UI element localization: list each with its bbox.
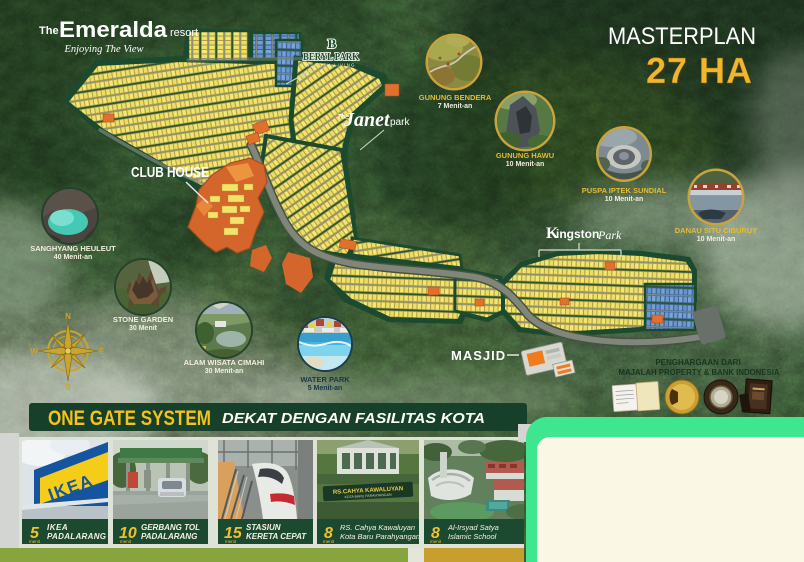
svg-text:IKEA: IKEA (47, 523, 68, 532)
svg-text:10 Menit-an: 10 Menit-an (506, 161, 545, 168)
svg-text:S: S (65, 383, 71, 392)
svg-text:B: B (328, 36, 337, 51)
svg-text:menit: menit (430, 539, 442, 544)
svg-text:resort: resort (170, 27, 198, 39)
svg-text:30 Menit-an: 30 Menit-an (205, 368, 244, 375)
svg-text:MASTERPLAN: MASTERPLAN (608, 23, 756, 50)
svg-text:27 HA: 27 HA (646, 50, 753, 91)
svg-text:ALAM WISATA CIMAHI: ALAM WISATA CIMAHI (184, 358, 265, 367)
svg-text:STONE GARDEN: STONE GARDEN (113, 315, 173, 324)
svg-text:menit: menit (29, 539, 41, 544)
svg-text:GUNUNG HAWU: GUNUNG HAWU (496, 151, 554, 160)
svg-text:BEAUTY LIVING: BEAUTY LIVING (306, 63, 356, 68)
svg-text:7 Menit-an: 7 Menit-an (438, 103, 473, 110)
svg-text:5 Menit-an: 5 Menit-an (308, 385, 343, 392)
svg-text:PUSPA IPTEK SUNDIAL: PUSPA IPTEK SUNDIAL (582, 186, 667, 195)
svg-text:30 Menit: 30 Menit (129, 325, 158, 332)
svg-text:RS. Cahya Kawaluyan: RS. Cahya Kawaluyan (340, 523, 415, 532)
svg-text:ingston: ingston (556, 227, 599, 241)
svg-text:Park: Park (597, 228, 622, 242)
svg-text:ONE GATE SYSTEM: ONE GATE SYSTEM (48, 407, 211, 430)
svg-text:The: The (39, 25, 59, 37)
svg-text:park: park (390, 117, 410, 128)
svg-text:Kota Baru Parahyangan: Kota Baru Parahyangan (340, 532, 420, 541)
svg-text:W: W (30, 347, 38, 356)
svg-text:PADALARANG: PADALARANG (141, 532, 197, 541)
svg-text:10 Menit-an: 10 Menit-an (697, 236, 736, 243)
svg-text:WATER PARK: WATER PARK (300, 375, 350, 384)
svg-text:Emeralda: Emeralda (59, 17, 168, 42)
svg-text:GERBANG TOL: GERBANG TOL (141, 523, 200, 532)
svg-text:SANGHYANG HEULEUT: SANGHYANG HEULEUT (30, 244, 116, 253)
svg-text:CLUB HOUSE: CLUB HOUSE (131, 165, 209, 181)
svg-text:40 Menit-an: 40 Menit-an (54, 254, 93, 261)
svg-text:Enjoying The View: Enjoying The View (63, 44, 143, 55)
svg-text:Islamic School: Islamic School (448, 532, 497, 541)
svg-text:MASJID: MASJID (451, 348, 506, 363)
svg-text:GUNUNG BENDERA: GUNUNG BENDERA (419, 93, 492, 102)
svg-text:BERYL PARK: BERYL PARK (303, 52, 360, 63)
svg-text:MAJALAH PROPERTY & BANK INDONE: MAJALAH PROPERTY & BANK INDONESIA (619, 367, 780, 377)
svg-text:menit: menit (120, 539, 132, 544)
svg-text:DANAU SITU CIBURUY: DANAU SITU CIBURUY (675, 226, 758, 235)
svg-text:Al-Irsyad Satya: Al-Irsyad Satya (447, 523, 499, 532)
svg-text:E: E (99, 347, 105, 356)
svg-text:N: N (65, 312, 71, 321)
svg-text:menit: menit (225, 539, 237, 544)
svg-text:10 Menit-an: 10 Menit-an (605, 196, 644, 203)
svg-text:KERETA CEPAT: KERETA CEPAT (246, 532, 307, 541)
svg-text:PADALARANG: PADALARANG (47, 532, 106, 541)
svg-text:PENGHARGAAN DARI: PENGHARGAAN DARI (655, 358, 740, 367)
svg-text:menit: menit (323, 539, 335, 544)
svg-text:Janet: Janet (343, 109, 391, 131)
svg-text:STASIUN: STASIUN (246, 523, 281, 532)
svg-text:DEKAT DENGAN FASILITAS KOTA: DEKAT DENGAN FASILITAS KOTA (222, 410, 485, 427)
